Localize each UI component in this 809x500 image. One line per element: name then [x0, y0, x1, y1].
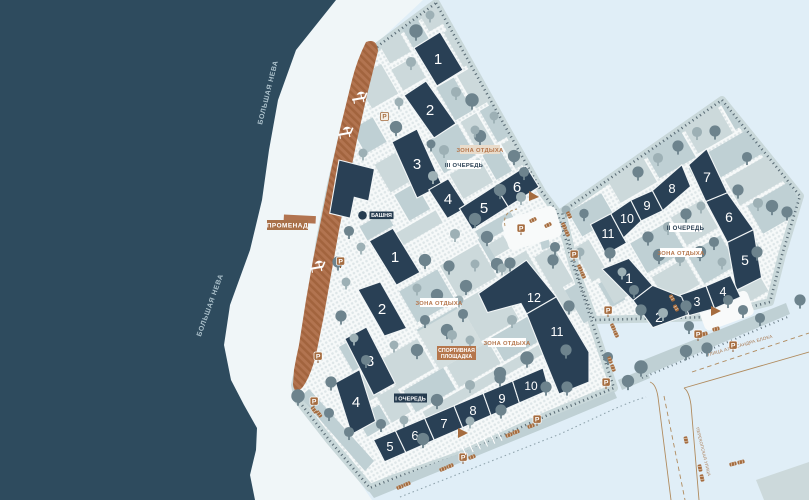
svg-text:P: P — [535, 416, 540, 423]
svg-text:9: 9 — [498, 391, 505, 406]
svg-text:P: P — [696, 331, 701, 338]
svg-text:8: 8 — [469, 403, 476, 418]
svg-text:12: 12 — [527, 291, 541, 305]
svg-text:7: 7 — [440, 416, 447, 431]
svg-text:7: 7 — [703, 169, 711, 185]
svg-text:P: P — [316, 353, 321, 360]
svg-text:I ОЧЕРЕДЬ: I ОЧЕРЕДЬ — [395, 396, 426, 402]
svg-text:P: P — [382, 114, 387, 121]
svg-text:10: 10 — [524, 379, 538, 393]
svg-text:4: 4 — [352, 394, 360, 411]
svg-text:5: 5 — [386, 439, 393, 454]
svg-text:II ОЧЕРЕДЬ: II ОЧЕРЕДЬ — [667, 226, 705, 232]
svg-text:6: 6 — [725, 209, 733, 225]
svg-text:3: 3 — [694, 295, 701, 309]
svg-text:ЗОНА ОТДЫХА: ЗОНА ОТДЫХА — [456, 148, 504, 154]
svg-text:2: 2 — [378, 301, 386, 318]
svg-text:III ОЧЕРЕДЬ: III ОЧЕРЕДЬ — [445, 163, 483, 169]
svg-text:ПРОМЕНАД: ПРОМЕНАД — [267, 222, 308, 229]
svg-text:БАШНЯ: БАШНЯ — [371, 213, 392, 219]
svg-text:11: 11 — [602, 227, 615, 241]
svg-text:P: P — [519, 225, 524, 232]
svg-text:4: 4 — [444, 191, 452, 208]
svg-text:5: 5 — [480, 200, 488, 217]
svg-text:ПЛОЩАДКА: ПЛОЩАДКА — [441, 354, 472, 360]
svg-text:8: 8 — [668, 181, 675, 196]
svg-text:P: P — [572, 251, 577, 258]
svg-text:ЗОНА ОТДЫХА: ЗОНА ОТДЫХА — [483, 341, 531, 347]
svg-text:P: P — [604, 379, 609, 386]
svg-text:P: P — [312, 398, 317, 405]
svg-text:P: P — [606, 307, 611, 314]
svg-text:10: 10 — [620, 212, 634, 226]
svg-text:P: P — [461, 454, 466, 461]
svg-text:ЗОНА ОТДЫХА: ЗОНА ОТДЫХА — [415, 301, 463, 307]
svg-text:P: P — [338, 258, 343, 265]
svg-text:11: 11 — [551, 325, 564, 339]
svg-text:ЗОНА ОТДЫХА: ЗОНА ОТДЫХА — [657, 251, 705, 257]
svg-text:3: 3 — [413, 156, 421, 173]
svg-text:9: 9 — [643, 198, 650, 213]
svg-text:P: P — [731, 342, 736, 349]
svg-text:1: 1 — [391, 249, 399, 266]
svg-text:5: 5 — [741, 252, 749, 268]
svg-text:1: 1 — [434, 51, 442, 68]
svg-text:2: 2 — [426, 102, 434, 119]
